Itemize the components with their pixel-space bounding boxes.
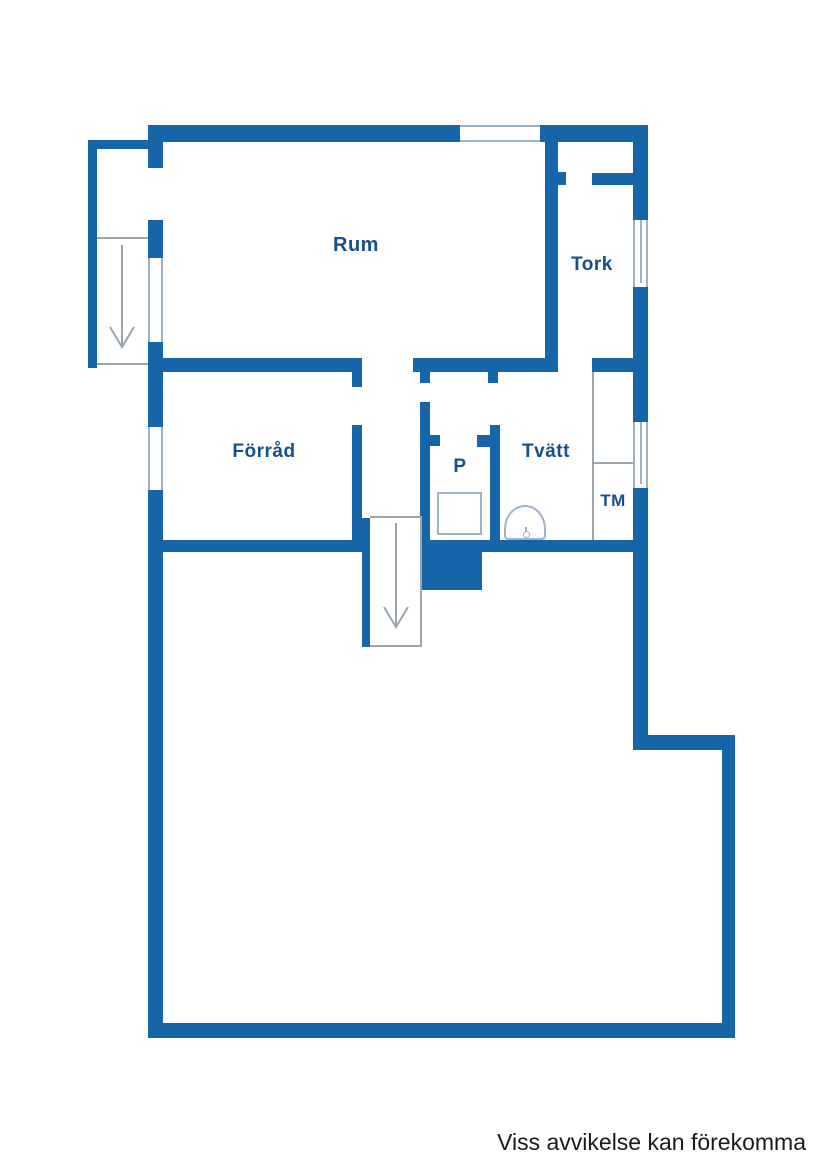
p-right-wall: [490, 425, 500, 542]
room-label-tork: Tork: [552, 254, 632, 276]
floor-plan: Rum Tork Förråd P Tvätt TM Viss avvikels…: [0, 0, 825, 1167]
annex-top-wall: [88, 140, 150, 149]
window-top: [460, 125, 540, 142]
stairs-down-arrow: [379, 521, 413, 645]
window-left-forrad: [148, 427, 163, 490]
right-wall-seg1: [633, 125, 648, 220]
left-wall-lower: [148, 552, 163, 1038]
forrad-bottom-wall: [148, 540, 370, 552]
p-right-door-bump: [477, 435, 490, 447]
room-label-forrad: Förråd: [204, 441, 324, 463]
mid-wall-b-stub1: [420, 372, 430, 383]
top-wall-left: [148, 125, 460, 142]
tork-door-stub-left: [558, 172, 566, 185]
annex-stair-landing-line: [97, 237, 148, 239]
mid-wall-b: [413, 358, 557, 372]
right-wall-seg3: [633, 488, 648, 750]
room-label-tm: TM: [583, 491, 643, 511]
left-wall-seg3: [148, 342, 163, 427]
step-wall-horizontal: [633, 735, 735, 750]
window-right-tork: [633, 220, 648, 287]
tm-divider-horizontal: [592, 462, 633, 464]
room-label-tvatt: Tvätt: [506, 441, 586, 463]
disclaimer-text: Viss avvikelse kan förekomma: [400, 1128, 806, 1156]
sink-icon: [504, 505, 546, 540]
bottom-wall: [148, 1023, 735, 1038]
stair-top-line: [370, 516, 422, 518]
right-wall-seg2: [633, 287, 648, 422]
room-label-p: P: [440, 456, 480, 478]
left-wall-seg2: [148, 220, 163, 258]
tm-divider-vertical: [592, 372, 594, 540]
window-right-tvatt: [633, 422, 648, 488]
stair-right-line: [420, 516, 422, 647]
mid-wall-b-stub2: [488, 372, 498, 383]
room-label-rum: Rum: [316, 234, 396, 257]
tork-door-stub-right: [592, 173, 633, 185]
mid-wall-c: [592, 358, 648, 372]
p-left-door-bump: [430, 435, 440, 446]
stair-left-wall: [362, 518, 370, 647]
laundry-bottom-wall: [422, 540, 648, 552]
right-wall-lower: [722, 738, 735, 1038]
mid-wall-a: [163, 358, 362, 372]
left-wall-seg1: [148, 125, 163, 168]
stairs-down-arrow: [105, 243, 139, 365]
stair-bottom-line: [370, 645, 422, 647]
shower-fixture: [437, 492, 482, 535]
solid-block: [422, 552, 482, 590]
forrad-right-wall: [352, 425, 362, 552]
window-left-rum: [148, 258, 163, 342]
annex-left-wall: [88, 140, 97, 368]
mid-wall-a-stub: [352, 372, 362, 387]
top-wall-right: [540, 125, 648, 142]
